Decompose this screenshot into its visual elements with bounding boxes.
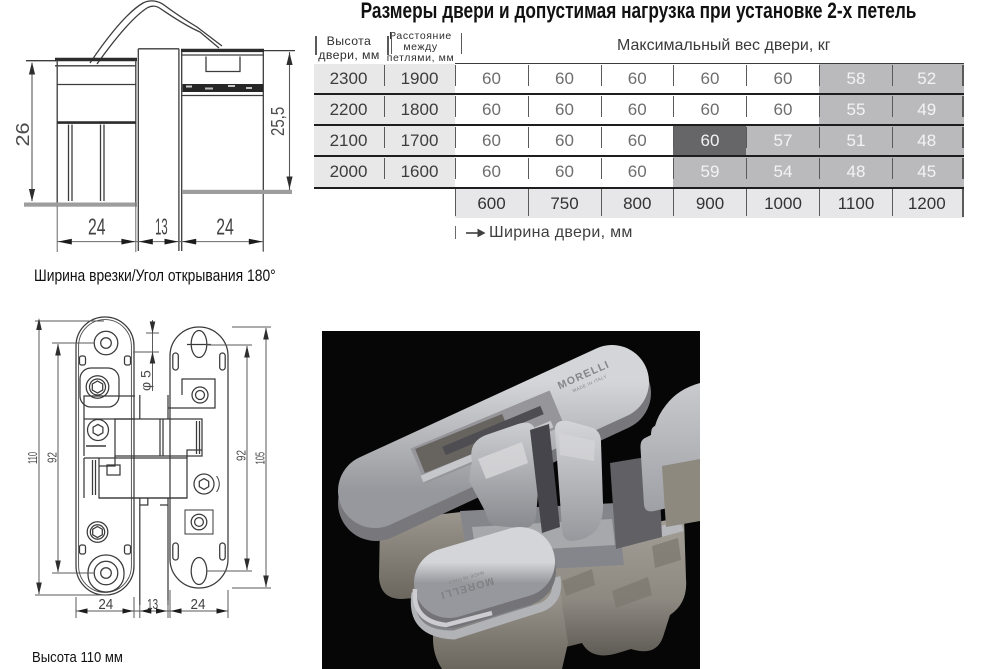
- svg-text:105: 105: [255, 452, 268, 465]
- svg-text:25,5: 25,5: [268, 107, 289, 136]
- svg-text:φ 5: φ 5: [138, 370, 154, 391]
- svg-text:110: 110: [27, 452, 40, 464]
- svg-text:92: 92: [47, 452, 60, 463]
- svg-text:13: 13: [147, 596, 158, 612]
- svg-text:13: 13: [155, 213, 168, 240]
- svg-text:24: 24: [216, 215, 234, 241]
- svg-text:92: 92: [236, 450, 249, 461]
- svg-text:24: 24: [88, 215, 106, 241]
- svg-text:24: 24: [98, 596, 113, 612]
- svg-text:24: 24: [191, 596, 206, 612]
- svg-text:26: 26: [13, 122, 33, 146]
